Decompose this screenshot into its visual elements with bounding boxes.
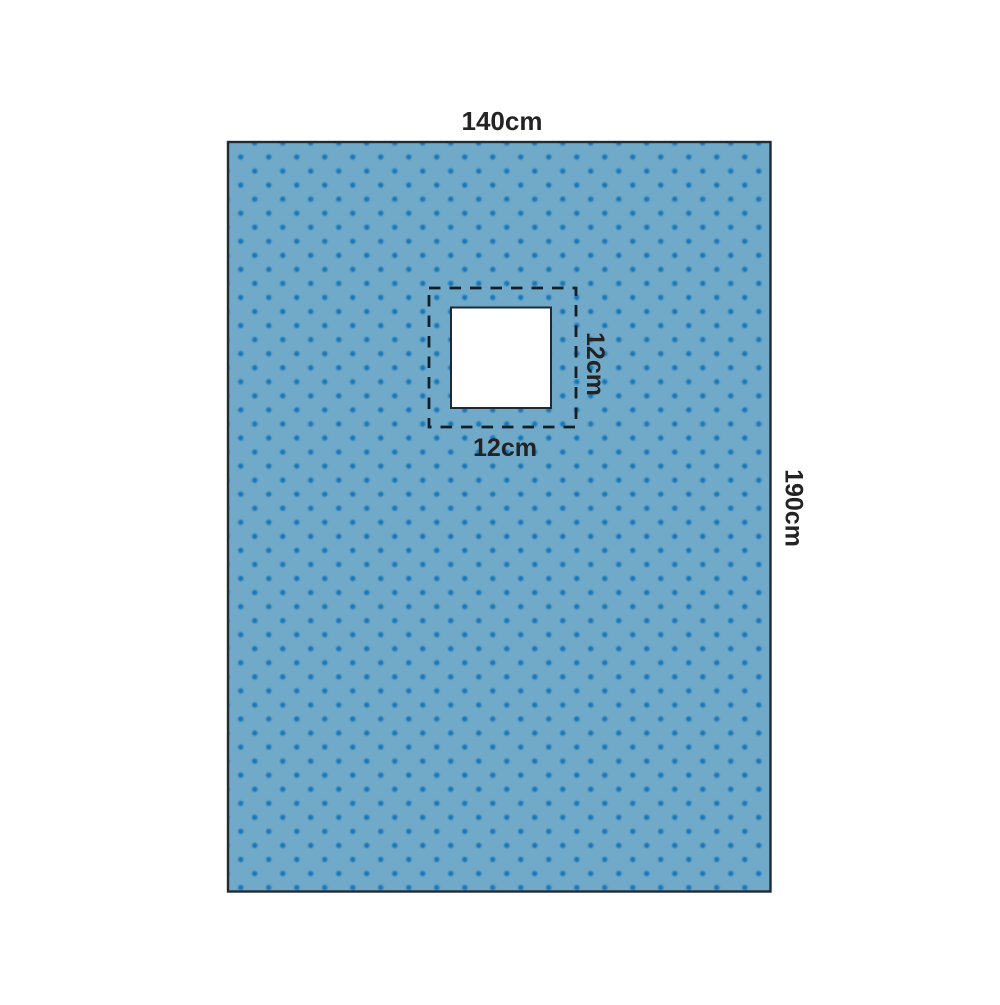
svg-text:190cm: 190cm [780, 469, 808, 547]
svg-text:12cm: 12cm [473, 434, 537, 462]
svg-text:140cm: 140cm [462, 106, 543, 136]
svg-text:12cm: 12cm [581, 332, 609, 396]
